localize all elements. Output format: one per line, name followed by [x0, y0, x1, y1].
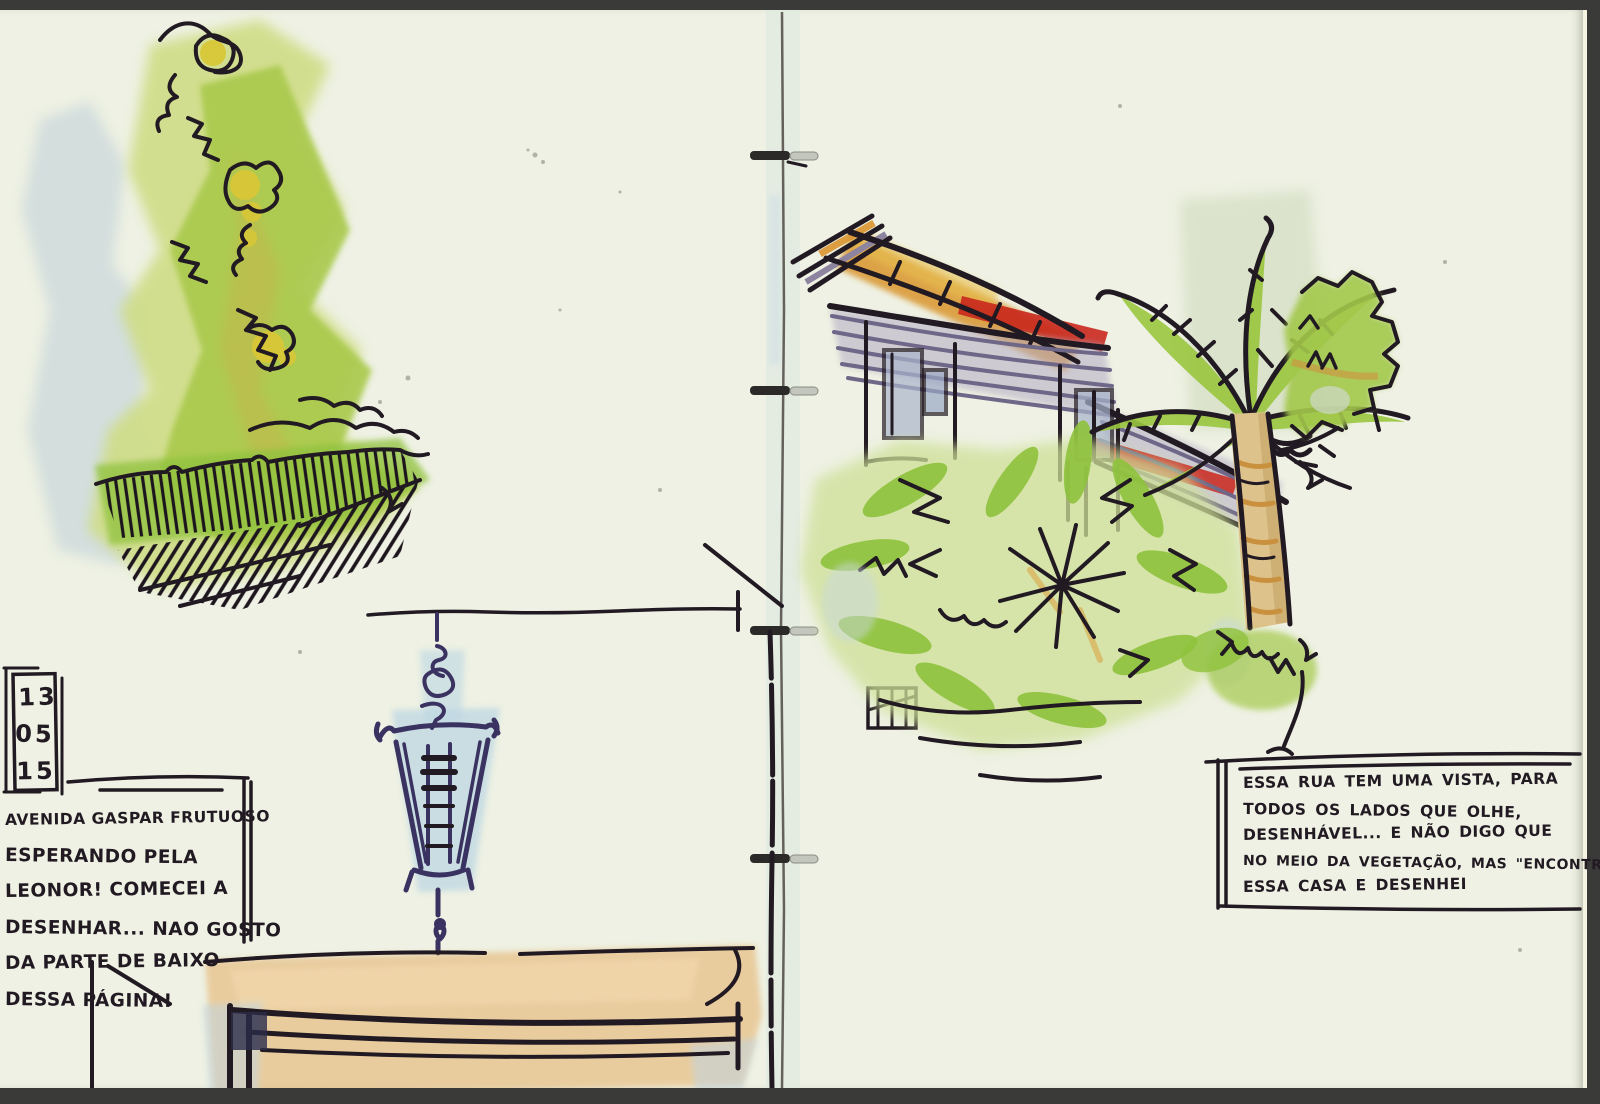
right-page-note: ESSA RUA TEM UMA VISTA, PARA TODOS OS LA… — [1243, 770, 1583, 900]
left-page-note: AVENIDA GASPAR FRUTUOSO ESPERANDO PELA L… — [5, 802, 265, 1018]
date-year: 15 — [15, 753, 58, 791]
bush-sketch — [22, 20, 430, 610]
scanner-background: 13 05 15 AVENIDA GASPAR FRUTUOSO ESPERAN… — [0, 0, 1600, 1104]
sketchbook-spread: 13 05 15 AVENIDA GASPAR FRUTUOSO ESPERAN… — [0, 10, 1587, 1088]
date-day: 13 — [16, 678, 59, 716]
date-stamp: 13 05 15 — [15, 679, 57, 790]
note-line: DESSA PÁGINA! — [5, 982, 265, 1021]
note-line: ESSA RUA TEM UMA VISTA, PARA — [1243, 765, 1583, 796]
date-month: 05 — [14, 716, 57, 754]
note-line: DESENHÁVEL... E NÃO DIGO QUE — [1243, 817, 1583, 848]
note-line: LEONOR! COMECEI A — [5, 870, 265, 910]
note-line: ESSA CASA E DESENHEI — [1243, 869, 1583, 900]
note-line: AVENIDA GASPAR FRUTUOSO — [5, 798, 265, 838]
note-line: DA PARTE DE BAIXO — [5, 942, 265, 982]
